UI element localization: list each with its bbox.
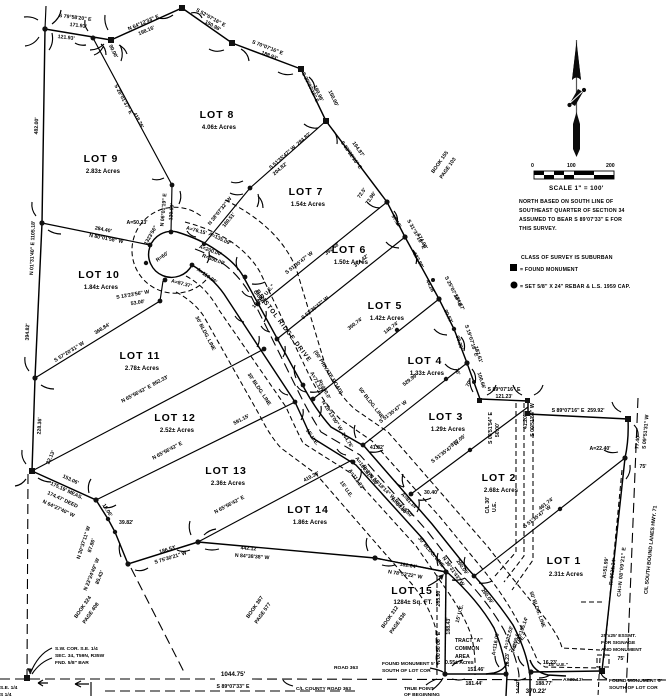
svg-text:41.20': 41.20' [523,415,529,429]
svg-text:1.42± Acres: 1.42± Acres [370,316,405,322]
svg-text:1.29± Acres: 1.29± Acres [431,427,466,433]
svg-text:1.54± Acres: 1.54± Acres [291,202,326,208]
svg-text:370.22': 370.22' [526,688,547,695]
svg-text:LOT 10: LOT 10 [78,269,120,281]
svg-text:CLASS OF SURVEY IS SUBURBAN: CLASS OF SURVEY IS SUBURBAN [521,255,613,261]
svg-text:S 00'51'54" E: S 00'51'54" E [488,411,494,444]
svg-text:FOUND MONUMENT 5': FOUND MONUMENT 5' [382,661,435,667]
svg-text:U.E.: U.E. [492,501,498,512]
svg-text:151.46': 151.46' [467,667,484,673]
svg-text:4.06± Acres: 4.06± Acres [202,125,237,131]
svg-text:FOR SIGNAGE: FOR SIGNAGE [601,640,636,646]
svg-text:200: 200 [606,163,615,169]
svg-text:228.36': 228.36' [37,417,44,434]
svg-text:S 1/4: S 1/4 [0,692,12,696]
svg-text:482.00': 482.00' [34,117,41,134]
svg-text:AND MONUMENT: AND MONUMENT [601,647,642,653]
svg-text:442.12': 442.12' [240,545,257,552]
svg-text:LOT 7: LOT 7 [289,186,324,198]
svg-text:1.84± Acres: 1.84± Acres [84,285,119,291]
svg-text:LOT 14: LOT 14 [287,504,329,516]
svg-text:THIS SURVEY.: THIS SURVEY. [519,226,557,232]
svg-text:C/L 30': C/L 30' [485,497,491,514]
svg-text:SOUTH OF LOT COR: SOUTH OF LOT COR [609,685,658,691]
svg-text:394.82': 394.82' [25,323,32,340]
svg-text:1044.75': 1044.75' [221,671,246,678]
svg-text:121.23': 121.23' [495,394,512,400]
svg-text:LOT 15: LOT 15 [391,585,433,597]
svg-text:COMMON: COMMON [455,646,479,652]
svg-text:LOT 2: LOT 2 [482,472,517,484]
svg-text:ROAD 363: ROAD 363 [334,665,358,671]
svg-text:SOUTH OF LOT COR: SOUTH OF LOT COR [382,668,431,674]
svg-text:ASSUMED TO BEAR S 89'07'33" E: ASSUMED TO BEAR S 89'07'33" E FOR [519,217,622,223]
svg-text:1.86± Acres: 1.86± Acres [293,520,328,526]
svg-text:0: 0 [531,163,534,169]
svg-text:2.52± Acres: 2.52± Acres [160,428,195,434]
svg-text:16.23': 16.23' [505,653,511,667]
svg-text:2.36± Acres: 2.36± Acres [211,481,246,487]
svg-text:= SET 5/8" X 24" REBAR & L.S.: = SET 5/8" X 24" REBAR & L.S. 1959 CAP. [520,284,631,290]
svg-text:2.31± Acres: 2.31± Acres [549,572,584,578]
svg-text:30.40': 30.40' [424,490,438,496]
svg-text:S 00'51'54" W: S 00'51'54" W [530,403,536,437]
svg-text:100: 100 [567,163,576,169]
svg-text:A=30.13': A=30.13' [563,677,583,683]
svg-text:SOUTHEAST QUARTER OF SECTION 3: SOUTHEAST QUARTER OF SECTION 34 [519,208,625,214]
svg-text:FND. 5/8" BAR: FND. 5/8" BAR [55,660,89,666]
svg-text:TRACT "A": TRACT "A" [455,638,483,644]
svg-text:188.43': 188.43' [446,617,452,634]
svg-text:2.68± Acres: 2.68± Acres [484,488,519,494]
svg-text:S.W. COR. S.E. 1/4: S.W. COR. S.E. 1/4 [55,646,98,652]
svg-text:S 89°07'16" E 259.92': S 89°07'16" E 259.92' [552,408,605,414]
svg-text:39.82': 39.82' [119,520,133,526]
svg-text:25'x25' ESSMT.: 25'x25' ESSMT. [601,633,637,639]
svg-text:S.E. 1/4: S.E. 1/4 [0,685,18,691]
svg-text:LOT 13: LOT 13 [205,465,247,477]
svg-text:1284± Sq. FT.: 1284± Sq. FT. [394,600,433,606]
svg-text:"15' U.E.": "15' U.E." [546,662,568,668]
svg-text:LOT 3: LOT 3 [429,411,464,423]
svg-text:LOT 8: LOT 8 [200,109,235,121]
svg-text:TRUE POINT: TRUE POINT [404,686,434,692]
svg-text:188.77': 188.77' [535,681,552,687]
svg-text:75': 75' [639,464,646,470]
svg-text:LOT 5: LOT 5 [368,300,403,312]
svg-text:2.78± Acres: 2.78± Acres [125,366,160,372]
svg-text:LOT 1: LOT 1 [547,555,582,567]
svg-text:LOT 11: LOT 11 [119,350,160,362]
svg-text:75': 75' [617,656,624,662]
svg-text:2.83± Acres: 2.83± Acres [86,169,121,175]
svg-text:SEC. 34, T59N, R35W: SEC. 34, T59N, R35W [55,653,105,659]
svg-text:LOT 4: LOT 4 [408,355,443,367]
svg-text:283.50': 283.50' [436,589,442,606]
svg-text:14.02': 14.02' [515,680,521,693]
svg-text:181.44': 181.44' [465,681,482,687]
svg-text:SCALE 1" = 100': SCALE 1" = 100' [549,185,604,192]
svg-text:NORTH BASED ON SOUTH LINE OF: NORTH BASED ON SOUTH LINE OF [519,199,613,205]
svg-text:OF BEGINNING: OF BEGINNING [404,692,440,696]
svg-text:S 89°07'33" E: S 89°07'33" E [217,684,250,690]
svg-text:LOT 9: LOT 9 [84,153,119,165]
svg-text:= FOUND MONUMENT: = FOUND MONUMENT [520,267,579,273]
svg-text:N 00'50'06" E: N 00'50'06" E [436,631,442,664]
svg-text:C/L COUNTY ROAD 363: C/L COUNTY ROAD 363 [296,686,351,692]
svg-text:FOUND MONUMENT 5': FOUND MONUMENT 5' [609,678,662,684]
svg-text:A=50.23': A=50.23' [127,220,148,226]
svg-text:LOT 12: LOT 12 [154,412,196,424]
svg-text:50.00': 50.00' [495,423,501,437]
